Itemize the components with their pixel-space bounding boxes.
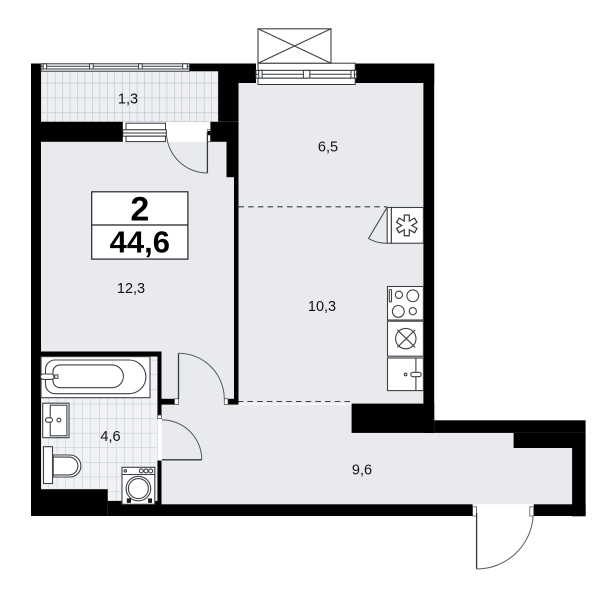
svg-text:1,3: 1,3	[118, 92, 138, 108]
svg-text:4,6: 4,6	[100, 429, 120, 445]
svg-text:10,3: 10,3	[308, 299, 336, 315]
svg-text:2: 2	[130, 191, 149, 229]
svg-text:44,6: 44,6	[110, 225, 170, 260]
svg-text:12,3: 12,3	[117, 281, 145, 297]
svg-text:6,5: 6,5	[318, 140, 338, 156]
svg-text:9,6: 9,6	[352, 463, 372, 479]
